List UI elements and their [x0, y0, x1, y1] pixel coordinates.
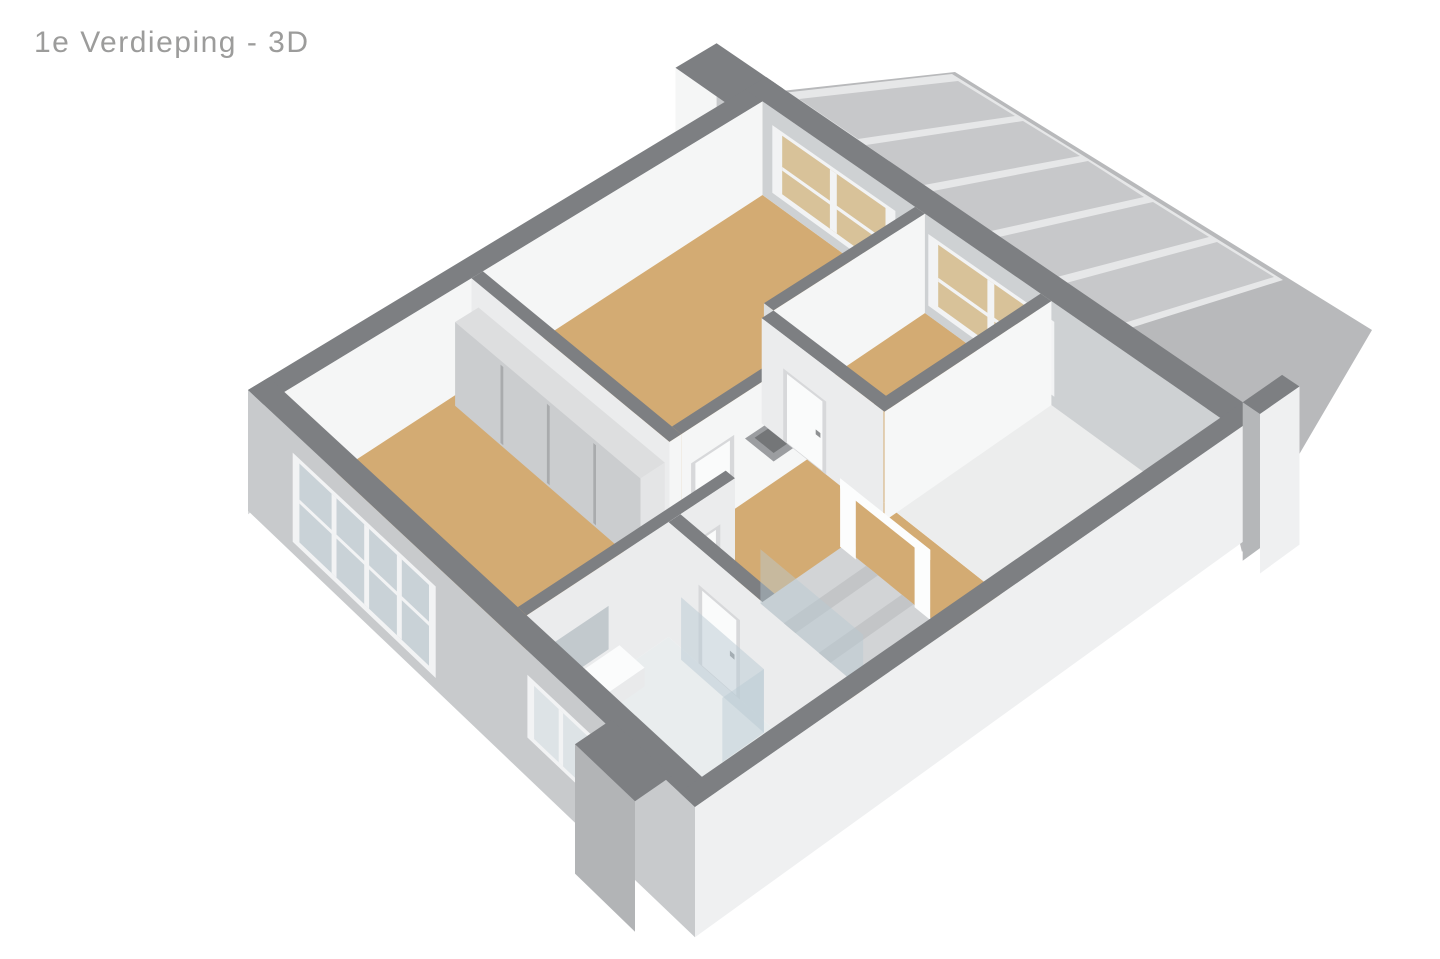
floorplan-3d: [0, 0, 1440, 959]
wall-extension-outer-face: [1260, 387, 1300, 574]
closet-door-seam-2: [547, 404, 550, 486]
closet-door-seam-3: [593, 443, 596, 525]
closet-door-seam-1: [501, 365, 504, 446]
floorplan-page: 1e Verdieping - 3D: [0, 0, 1440, 959]
window-top-room-mullion: [830, 169, 837, 234]
window-bathroom-mullion: [559, 709, 563, 767]
